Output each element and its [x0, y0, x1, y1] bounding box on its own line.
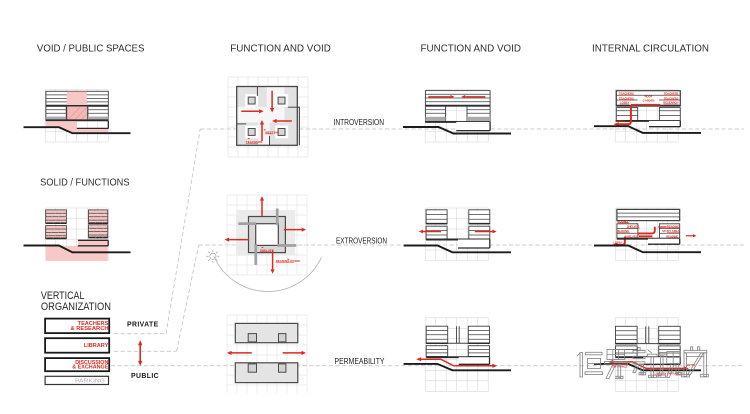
- svg-text:PRIVATE: PRIVATE: [127, 321, 159, 328]
- svg-text:SOLID / FUNCTIONS: SOLID / FUNCTIONS: [40, 177, 130, 188]
- svg-text:FUNCTION AND VOID: FUNCTION AND VOID: [421, 44, 522, 55]
- svg-text:VOID / PUBLIC SPACES: VOID / PUBLIC SPACES: [37, 44, 145, 55]
- svg-text:FUNCTION AND VOID: FUNCTION AND VOID: [230, 44, 330, 55]
- svg-text:ORGANIZATION: ORGANIZATION: [41, 301, 111, 313]
- svg-text:LOBBY: LOBBY: [616, 119, 626, 123]
- svg-text:PARKING: PARKING: [75, 379, 105, 385]
- svg-text:& RESEARCH: & RESEARCH: [71, 326, 109, 332]
- svg-text:LIBRARY: LIBRARY: [84, 343, 109, 349]
- svg-text:INTERNAL CIRCULATION: INTERNAL CIRCULATION: [592, 44, 709, 55]
- svg-text:PUBLIC: PUBLIC: [131, 373, 159, 380]
- svg-text:VERTICAL: VERTICAL: [41, 290, 85, 302]
- svg-text:GARDEN: GARDEN: [643, 99, 655, 103]
- svg-text:LOBBY: LOBBY: [614, 241, 623, 245]
- svg-text:PERMEABILITY: PERMEABILITY: [335, 357, 386, 366]
- svg-text:EXTROVERSION: EXTROVERSION: [336, 236, 387, 245]
- svg-text:INTROVERSION: INTROVERSION: [334, 118, 385, 127]
- svg-text:ROOF: ROOF: [645, 95, 653, 99]
- svg-text:& EXCHANGE: & EXCHANGE: [72, 365, 108, 371]
